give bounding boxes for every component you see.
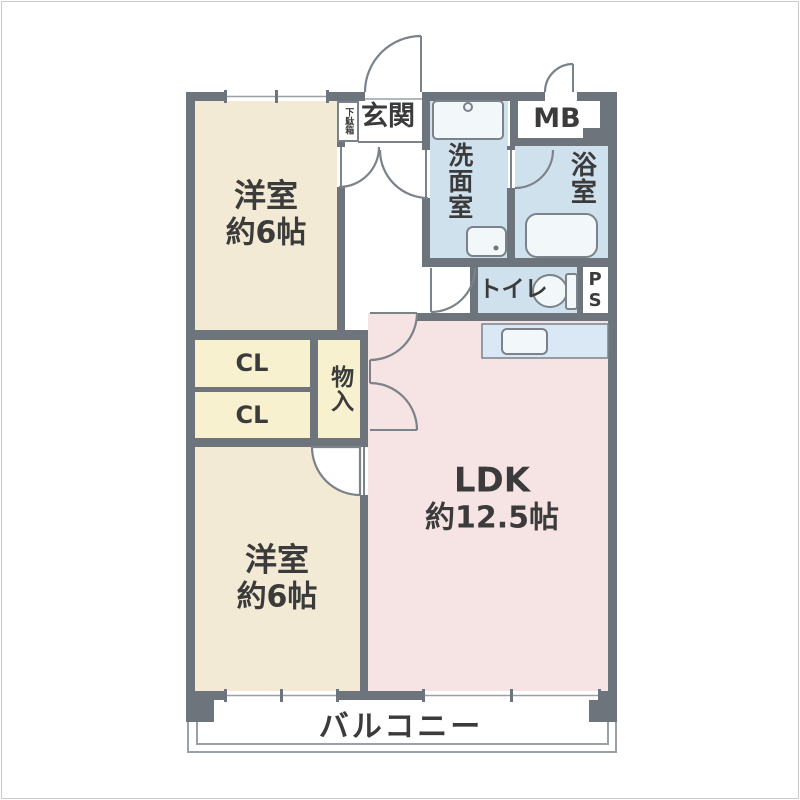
ldk-label: LDK 約12.5帖 — [425, 460, 559, 536]
closet-top-label: CL — [236, 349, 269, 377]
bathtub — [526, 214, 597, 257]
window-tick — [336, 689, 339, 702]
washbasin-faucet — [464, 103, 472, 111]
closet-bottom-label: CL — [236, 401, 269, 429]
entrance-label: 玄関 — [361, 101, 415, 133]
window-tick — [598, 689, 601, 702]
pipe-space-label: PS — [584, 269, 605, 311]
toilet-door-arc — [431, 268, 475, 312]
window-tick — [224, 90, 227, 103]
bedroom2-label: 洋室 約6帖 — [237, 541, 318, 614]
washroom-door-arc — [380, 150, 428, 198]
washroom-label: 洗面室 — [444, 142, 474, 220]
bedroom2-name: 洋室 — [237, 541, 318, 579]
meter-box-label: MB — [533, 103, 580, 135]
window-tick — [280, 689, 283, 702]
window-tick — [326, 90, 329, 103]
meter-box-door-arc — [545, 64, 573, 92]
toilet-tank — [566, 274, 577, 309]
bathroom-label: 浴室 — [566, 151, 597, 205]
bedroom1-name: 洋室 — [226, 177, 307, 215]
storage-label: 物入 — [325, 365, 352, 413]
ldk-name: LDK — [425, 460, 559, 500]
window-tick — [422, 689, 425, 702]
ldk-door-lower-arc — [370, 383, 417, 430]
washer-drain-dot — [494, 246, 499, 251]
bedroom2-size: 約6帖 — [237, 579, 318, 614]
window-tick — [510, 689, 513, 702]
entry-door-arc — [365, 36, 421, 92]
floor-plan: 洋室 約6帖 洋室 約6帖 LDK 約12.5帖 玄関 下駄箱 洗面室 浴室 M… — [0, 0, 800, 800]
bedroom1-label: 洋室 約6帖 — [226, 177, 307, 250]
ldk-door-upper-arc — [370, 313, 417, 360]
bedroom1-size: 約6帖 — [226, 215, 307, 250]
ldk-size: 約12.5帖 — [425, 500, 559, 535]
bedroom2-door-swing — [312, 447, 360, 495]
balcony-label: バルコニー — [319, 709, 483, 744]
window-tick — [275, 90, 278, 103]
kitchen-sink — [502, 329, 547, 354]
toilet-label: トイレ — [479, 276, 548, 303]
shoe-cabinet-label: 下駄箱 — [343, 108, 354, 135]
bedroom1-door-arc — [339, 147, 379, 187]
washing-machine-pan — [467, 227, 506, 256]
window-tick — [224, 689, 227, 702]
bathroom-door-arc — [515, 150, 553, 188]
